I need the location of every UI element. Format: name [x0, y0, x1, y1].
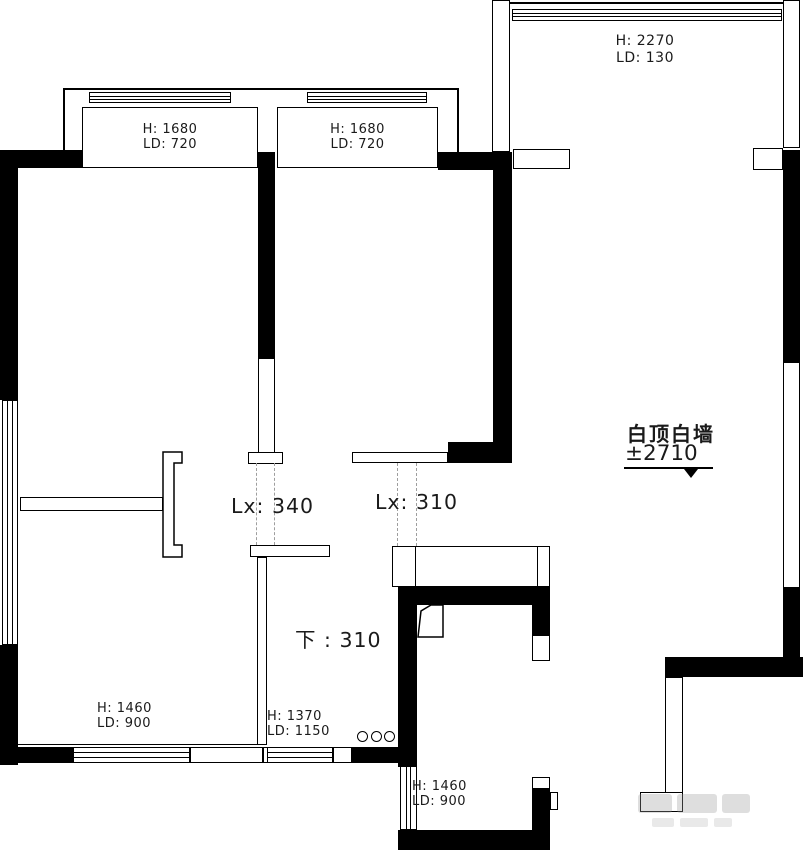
window-label-bottom-left: H: 1460 LD: 900 [97, 702, 152, 731]
window-sill-value: LD: 900 [412, 795, 467, 810]
level-marker-icon [684, 469, 698, 478]
wall-bottom-mid [352, 747, 398, 763]
window-symbol-bottom-mid [267, 747, 333, 763]
window-height-value: H: 1460 [97, 702, 152, 717]
wall-cap-hall-upper [248, 452, 283, 464]
outer-wall-line-topright [508, 2, 783, 4]
window-symbol-top-right [512, 9, 782, 21]
wall-right-bottom-band [665, 657, 803, 677]
window-height-value: H: 1370 [267, 710, 330, 725]
wall-cap-right [753, 148, 783, 170]
window-label-bath: H: 1460 LD: 900 [412, 780, 467, 809]
ceiling-level-value: ±2710 [625, 441, 698, 466]
wall-bottom-left-corner [0, 747, 73, 763]
wall-bath-top-band [398, 587, 550, 605]
window-label-bottom-mid: H: 1370 LD: 1150 [267, 710, 330, 739]
wall-bath-right-lower [532, 788, 550, 830]
window-height-value: H: 1680 [82, 123, 258, 138]
window-sill-value: LD: 130 [595, 50, 695, 67]
window-height-value: H: 1460 [412, 780, 467, 795]
beam-label-kitchen: Lx: 310 [375, 490, 458, 514]
hollow-wall-topright-left [492, 0, 510, 152]
floor-edge-line [18, 744, 258, 745]
bottom-wall-divider [263, 747, 268, 763]
wall-left-upper [0, 168, 18, 400]
outer-wall-line-left [63, 88, 65, 152]
wall-bath-left [398, 587, 417, 767]
wall-right-upper [783, 150, 800, 362]
bottom-wall-opening [190, 747, 263, 763]
wall-cap-bedroom2-bottom [352, 452, 448, 463]
window-symbol-bay-mid [307, 92, 427, 103]
counter-bar-divider-right [537, 547, 538, 586]
door-swing-icon [418, 605, 443, 637]
wall-cap-hall-lower [250, 545, 330, 557]
hollow-wall-right-mid [783, 362, 800, 588]
window-sill-value: LD: 720 [277, 138, 438, 153]
window-sill-value: LD: 900 [97, 717, 152, 732]
fixture-circle-icon [357, 731, 368, 742]
wall-between-bedrooms [258, 152, 275, 358]
step-down-label: 下 : 310 [295, 623, 382, 653]
hollow-wall-right-upper [783, 0, 800, 148]
wall-bath-right-upper [532, 605, 550, 635]
wall-cap-bath-low [532, 777, 550, 789]
hollow-wall-step-vertical [665, 677, 683, 794]
outer-wall-line-top [63, 88, 459, 90]
hollow-wall-hall-vertical [257, 557, 267, 745]
bottom-wall-cap-box [333, 747, 352, 763]
hollow-wall-hall-horizontal [20, 497, 163, 511]
wall-bedroom2-top-band [438, 152, 512, 170]
hollow-wall-between-bedrooms [258, 358, 275, 453]
window-symbol-bay-left [89, 92, 231, 103]
counter-bar-divider-left [415, 547, 416, 586]
window-sill-value: LD: 1150 [267, 725, 330, 740]
wall-bath-bottom-band [398, 830, 550, 850]
outer-wall-line-right [457, 88, 459, 152]
window-symbol-bottom-left [73, 747, 190, 763]
door-frame-top-opening [513, 149, 570, 169]
window-height-value: H: 1680 [277, 123, 438, 138]
floor-plan-canvas: H: 1680 LD: 720 H: 1680 LD: 720 H: 2270 … [0, 0, 803, 850]
fixture-circle-icon [371, 731, 382, 742]
level-underline [624, 467, 713, 469]
window-sill-value: LD: 720 [82, 138, 258, 153]
window-label-top-right: H: 2270 LD: 130 [595, 33, 695, 66]
beam-label-hall: Lx: 340 [231, 494, 314, 518]
wall-notch-bath [550, 792, 558, 810]
wall-bedroom2-right-foot [448, 442, 512, 463]
wall-top-left-horizontal [0, 150, 82, 168]
watermark-row [652, 818, 750, 827]
window-height-value: H: 2270 [595, 33, 695, 50]
watermark [638, 794, 750, 827]
window-label-bay-left: H: 1680 LD: 720 [82, 123, 258, 152]
fixture-circle-icon [384, 731, 395, 742]
window-symbol-left-wall [2, 400, 18, 645]
watermark-row [638, 794, 750, 813]
wall-cap-bath-mid [532, 635, 550, 661]
wall-bedroom2-right [493, 170, 512, 442]
window-label-bay-mid: H: 1680 LD: 720 [277, 123, 438, 152]
door-jamb-column [163, 452, 182, 557]
